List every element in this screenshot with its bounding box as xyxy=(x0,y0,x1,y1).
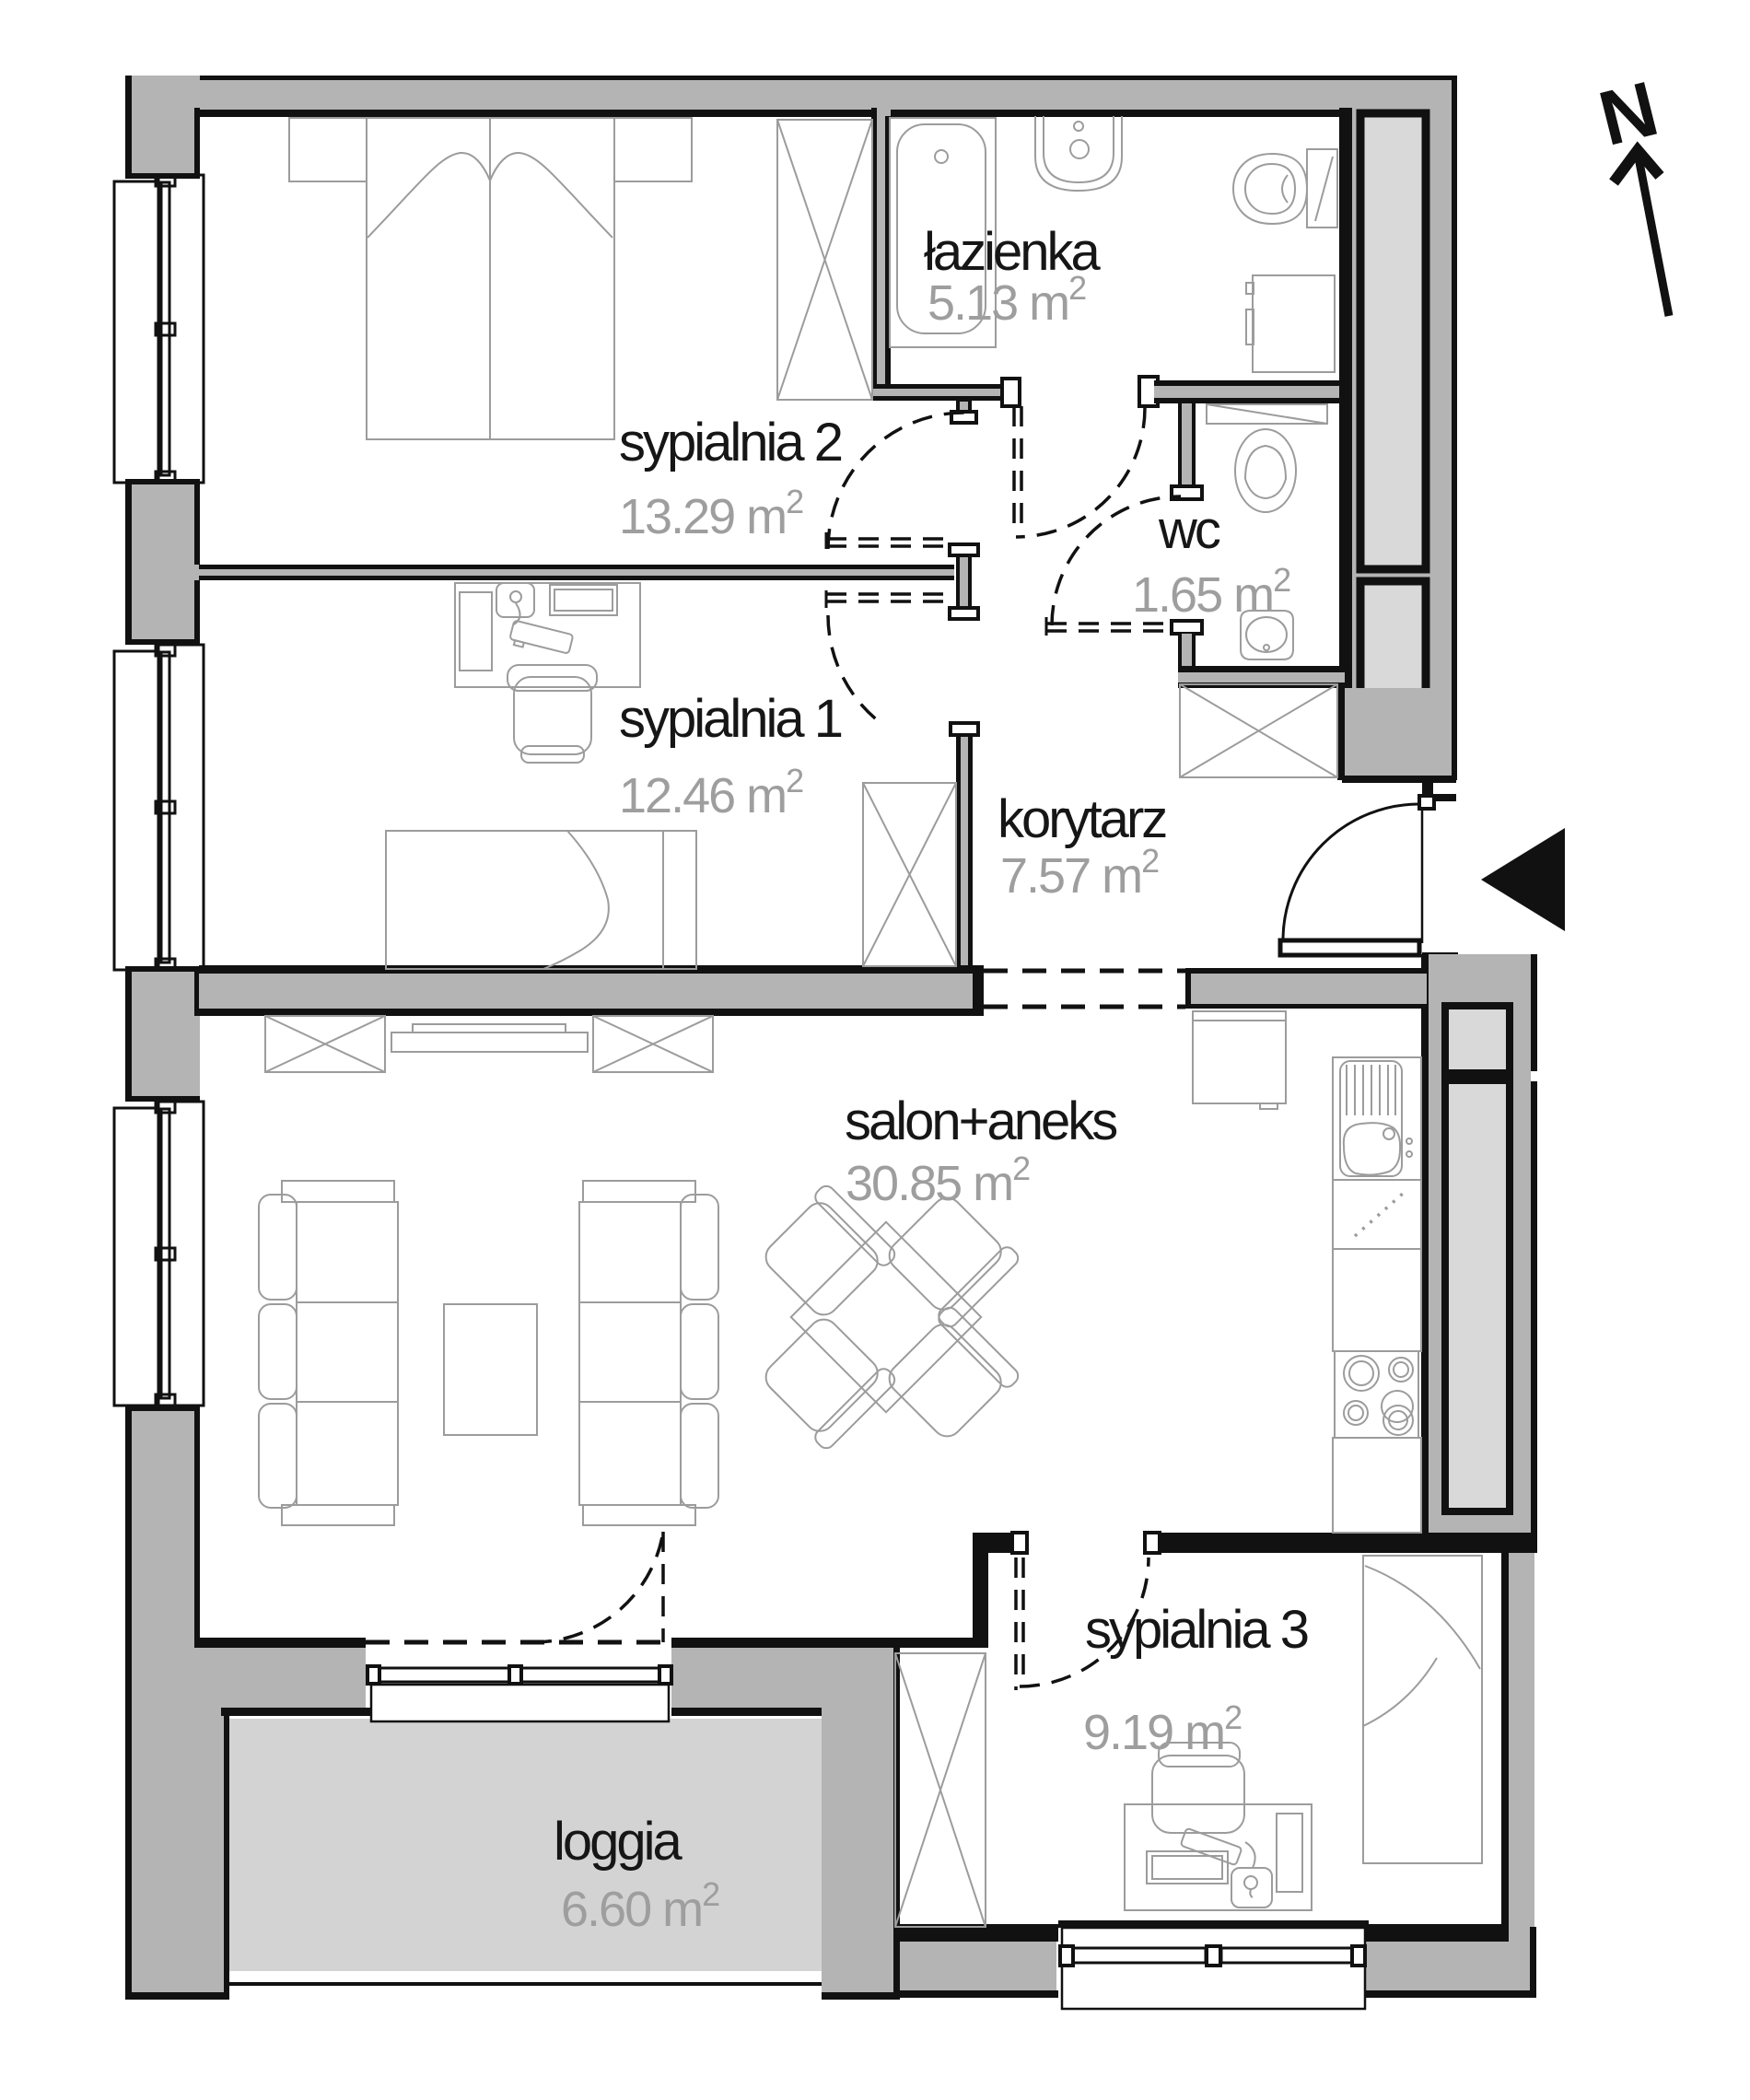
svg-text:wc: wc xyxy=(1158,500,1220,560)
svg-text:9.19 m2: 9.19 m2 xyxy=(1083,1698,1242,1760)
svg-text:7.57 m2: 7.57 m2 xyxy=(1000,842,1159,904)
svg-text:12.46 m2: 12.46 m2 xyxy=(619,762,803,823)
svg-text:salon+aneks: salon+aneks xyxy=(845,1091,1116,1151)
svg-text:sypialnia 1: sypialnia 1 xyxy=(619,689,842,749)
svg-text:5.13 m2: 5.13 m2 xyxy=(927,269,1086,331)
svg-text:sypialnia 2: sypialnia 2 xyxy=(619,413,842,472)
svg-text:13.29 m2: 13.29 m2 xyxy=(619,483,803,544)
svg-text:korytarz: korytarz xyxy=(997,789,1166,849)
svg-text:loggia: loggia xyxy=(554,1812,683,1872)
svg-text:1.65 m2: 1.65 m2 xyxy=(1132,561,1290,623)
svg-text:30.85 m2: 30.85 m2 xyxy=(846,1149,1030,1211)
svg-text:sypialnia 3: sypialnia 3 xyxy=(1085,1600,1308,1660)
svg-text:6.60 m2: 6.60 m2 xyxy=(561,1875,719,1937)
